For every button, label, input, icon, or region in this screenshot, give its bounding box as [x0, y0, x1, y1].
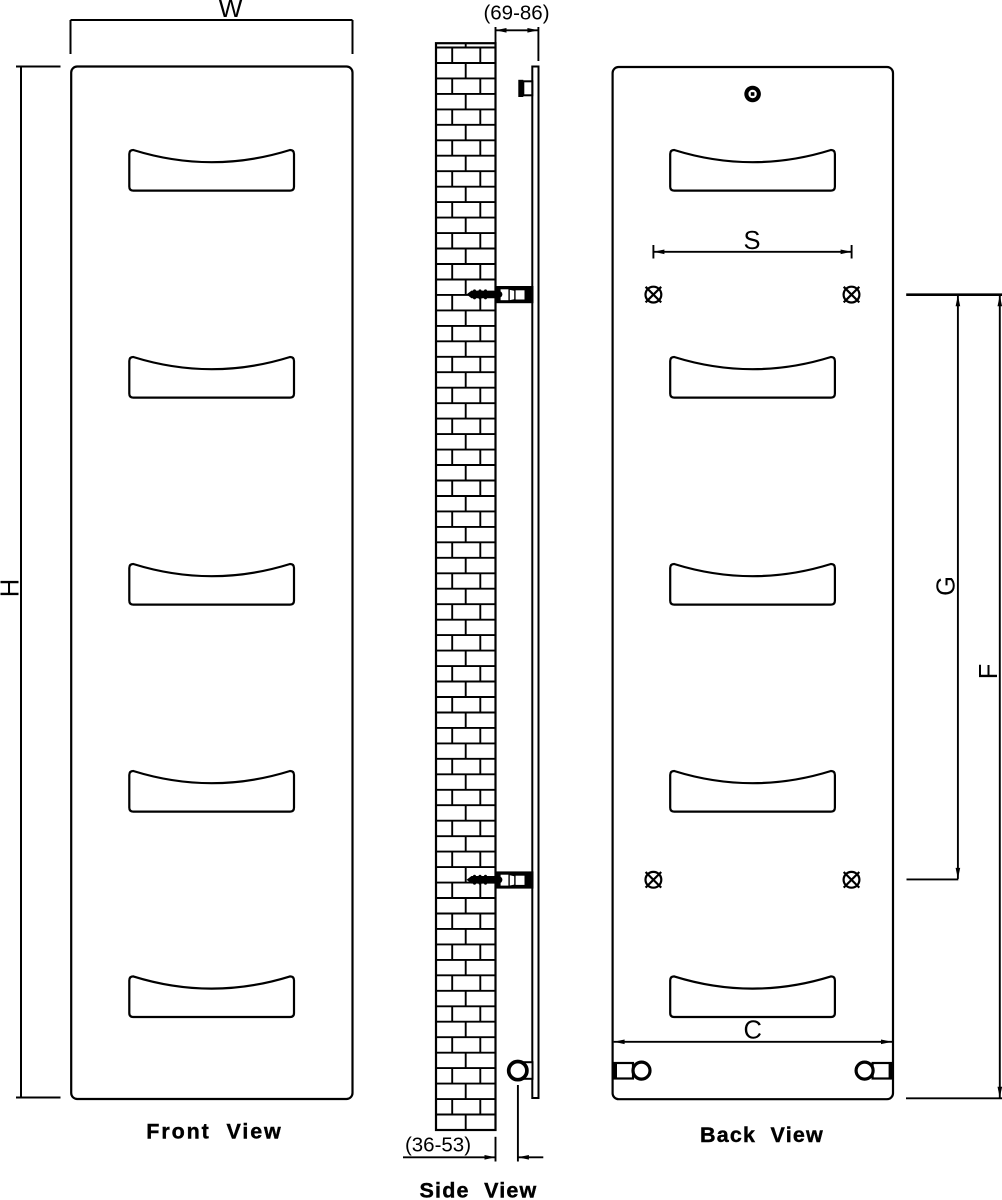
- svg-text:F: F: [975, 664, 1002, 680]
- svg-text:Back View: Back View: [700, 1123, 824, 1147]
- svg-text:W: W: [218, 0, 242, 23]
- svg-text:Front View: Front View: [146, 1120, 282, 1144]
- svg-text:C: C: [743, 1017, 761, 1045]
- svg-text:G: G: [932, 576, 960, 596]
- svg-text:S: S: [743, 227, 760, 255]
- svg-text:(36-53): (36-53): [405, 1134, 471, 1157]
- svg-text:(69-86): (69-86): [483, 2, 549, 25]
- svg-text:Side View: Side View: [420, 1179, 538, 1200]
- svg-text:H: H: [0, 579, 24, 597]
